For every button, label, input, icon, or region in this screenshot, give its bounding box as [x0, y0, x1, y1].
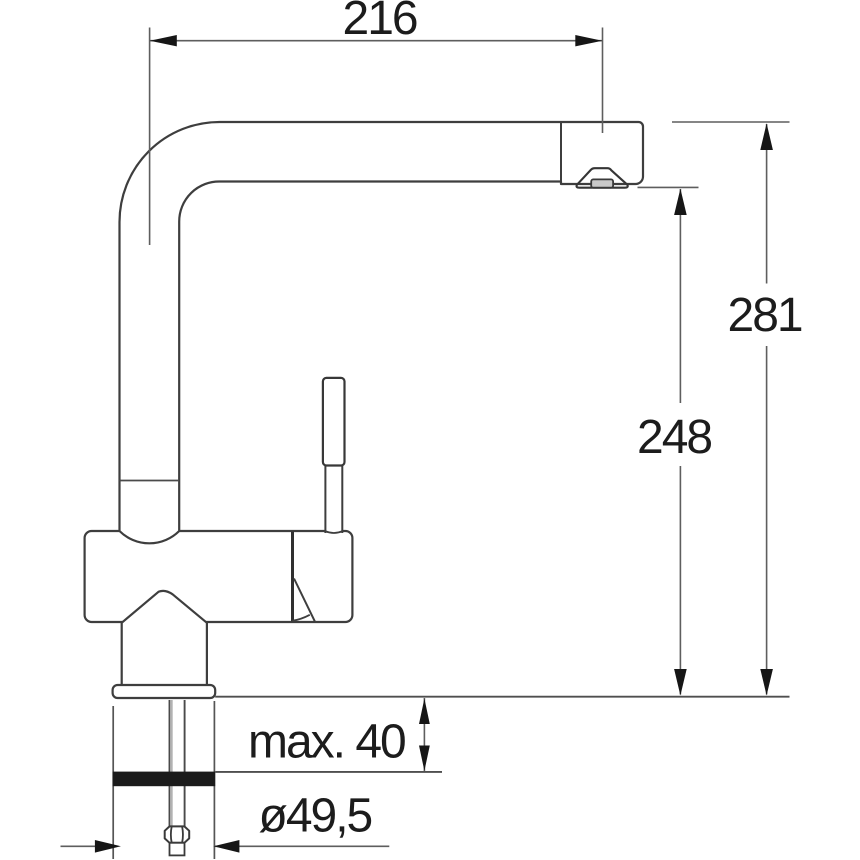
svg-text:248: 248	[637, 411, 711, 464]
svg-text:216: 216	[343, 0, 417, 45]
svg-text:max. 40: max. 40	[248, 716, 405, 769]
svg-text:ø49,5: ø49,5	[259, 790, 372, 843]
svg-text:281: 281	[728, 289, 802, 342]
